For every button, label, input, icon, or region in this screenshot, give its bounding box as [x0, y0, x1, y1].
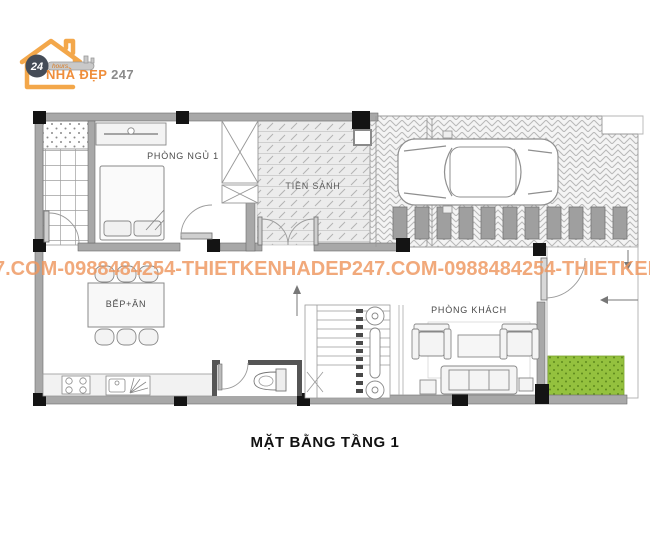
logo-house-key-icon: 24 hours: [14, 36, 114, 96]
logo-brand-suffix: 247: [111, 67, 134, 82]
wardrobe: [96, 123, 166, 145]
room-label-entrance-hall: TIỀN SẢNH: [285, 181, 340, 191]
logo-brand-name: NHÀ ĐẸP: [46, 67, 111, 82]
living-furniture: [412, 322, 539, 394]
wc2: [212, 360, 302, 396]
car-icon: [398, 131, 558, 213]
stairs: [293, 285, 390, 399]
side-table-left: [420, 380, 436, 394]
room-label-bedroom-1: PHÒNG NGỦ 1: [147, 151, 219, 161]
bed: [100, 166, 164, 240]
wc1-floor: [43, 121, 89, 245]
arrow-up-icon: [293, 285, 301, 294]
coffee-table: [458, 335, 500, 357]
sofa: [441, 366, 517, 394]
page: { "logo": { "badge_number": "24", "badge…: [0, 0, 650, 544]
plan-title: MẶT BẰNG TẦNG 1: [0, 434, 650, 451]
room-label-living-room: PHÒNG KHÁCH: [431, 305, 507, 315]
room-label-kitchen-dining: BẾP+ĂN: [106, 299, 147, 309]
logo-badge-number: 24: [30, 61, 43, 73]
garden-patch: [548, 356, 624, 396]
armchair-right: [500, 324, 539, 359]
side-table-right: [519, 378, 533, 391]
armchair-left: [412, 324, 451, 359]
stove-icon: [62, 376, 90, 394]
logo: 24 hours NHÀ ĐẸP 247: [14, 36, 154, 96]
kitchen-counter: [43, 374, 213, 396]
sink-icon: [106, 376, 150, 395]
driveway-ramp-strips: [393, 207, 627, 239]
closet: [222, 121, 258, 203]
logo-brand: NHÀ ĐẸP 247: [46, 67, 134, 82]
entry-court: [547, 247, 638, 398]
